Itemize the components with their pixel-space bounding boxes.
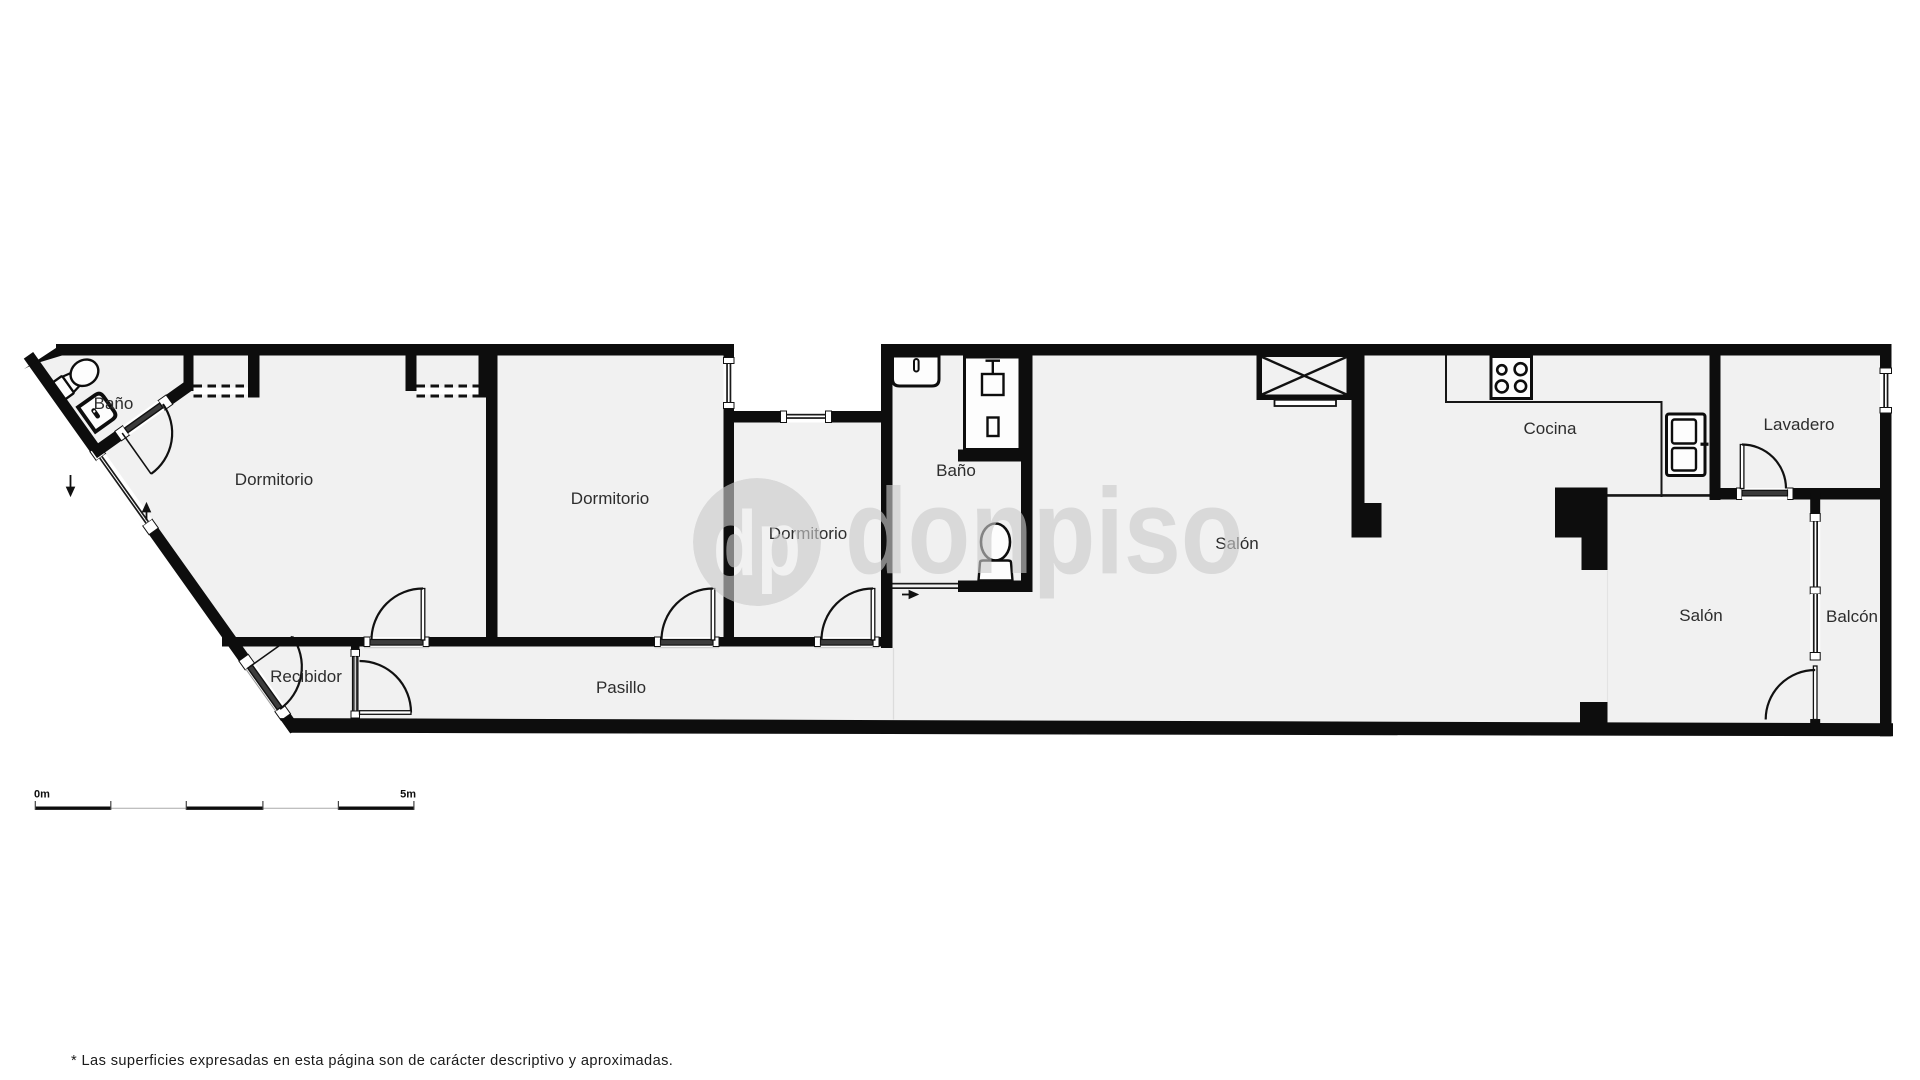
svg-text:Balcón: Balcón — [1826, 607, 1878, 626]
svg-text:Baño: Baño — [94, 394, 134, 413]
svg-text:Salón: Salón — [1679, 606, 1722, 625]
svg-text:0m: 0m — [34, 789, 50, 801]
svg-text:Dormitorio: Dormitorio — [235, 470, 313, 489]
svg-text:Recibidor: Recibidor — [270, 667, 342, 686]
svg-text:Cocina: Cocina — [1524, 419, 1577, 438]
svg-text:Dormitorio: Dormitorio — [571, 489, 649, 508]
svg-text:Lavadero: Lavadero — [1764, 415, 1835, 434]
svg-text:5m: 5m — [400, 789, 416, 801]
svg-text:Pasillo: Pasillo — [596, 678, 646, 697]
svg-text:* Las superficies expresadas e: * Las superficies expresadas en esta pág… — [71, 1053, 673, 1069]
svg-text:donpiso: donpiso — [845, 463, 1243, 599]
